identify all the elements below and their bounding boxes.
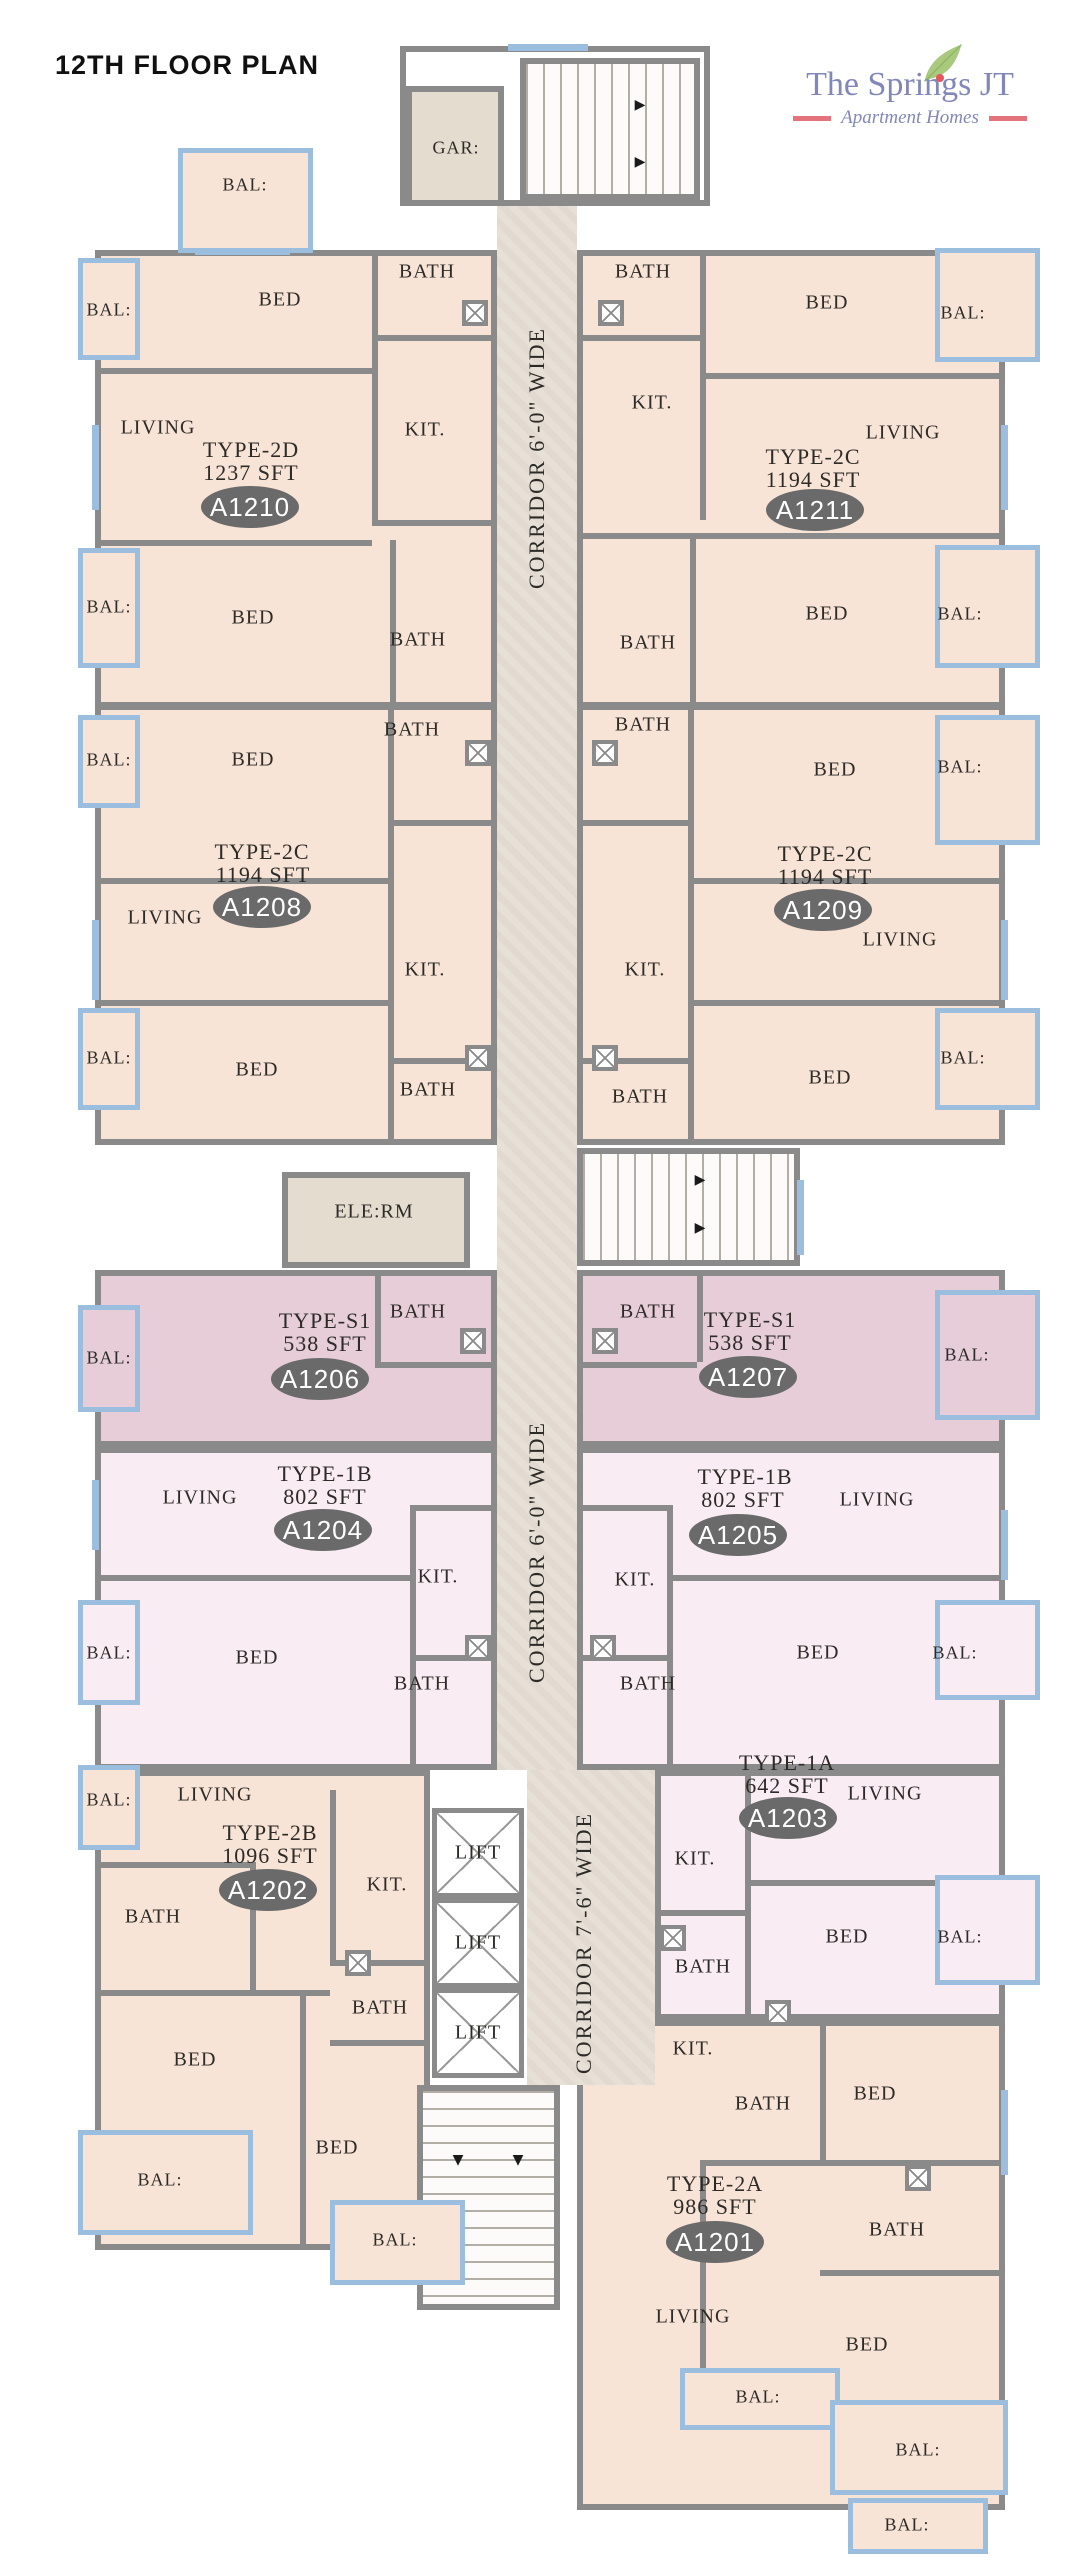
wall (388, 820, 497, 826)
duct-x-icon (598, 300, 624, 326)
room-label-kitchen: KIT. (367, 1874, 408, 1897)
duct-x-icon (460, 1328, 486, 1354)
duct-x-icon (905, 2165, 931, 2191)
wall (655, 1910, 745, 1916)
room-label-kitchen: KIT. (632, 392, 673, 415)
stairs-top (520, 58, 700, 200)
lift-label: LIFT (455, 1932, 501, 1955)
unit-area: 1237 SFT (203, 460, 298, 486)
stair-arrow-icon: ▼ (513, 2152, 524, 2168)
corridor-label-middle: CORRIDOR 6'-0" WIDE (524, 1421, 550, 1683)
window (797, 1180, 804, 1255)
tagline-bar (793, 116, 831, 121)
balcony (178, 148, 313, 253)
wall (101, 1000, 388, 1006)
stairs-middle (577, 1148, 800, 1266)
duct-x-icon (465, 1045, 491, 1071)
room-label-living: LIVING (848, 1783, 923, 1806)
room-label-balcony: BAL: (937, 1927, 982, 1948)
room-label-bath: BATH (394, 1673, 450, 1696)
wall (667, 1505, 673, 1770)
brand-tagline: Apartment Homes (841, 107, 979, 129)
room-label-balcony: BAL: (940, 1048, 985, 1069)
unit-badge-a1202: A1202 (219, 1869, 317, 1911)
room-label-balcony: BAL: (937, 757, 982, 778)
room-label-bed: BED (174, 2049, 217, 2072)
room-label-bed: BED (232, 607, 275, 630)
unit-area: 1194 SFT (778, 864, 873, 890)
wall (410, 1505, 416, 1770)
unit-area: 1096 SFT (222, 1843, 317, 1869)
wall (101, 540, 372, 546)
room-label-bath: BATH (390, 629, 446, 652)
room-label-bath: BATH (615, 714, 671, 737)
unit-area: 802 SFT (701, 1487, 784, 1513)
window (1001, 920, 1008, 1000)
brand-dot-icon (936, 74, 944, 82)
unit-badge-a1206: A1206 (271, 1358, 369, 1400)
wall (577, 533, 1001, 539)
stair-arrow-icon: ▶ (635, 154, 646, 170)
unit-badge-a1209: A1209 (774, 889, 872, 931)
room-label-balcony: BAL: (86, 597, 131, 618)
room-label-balcony: BAL: (86, 300, 131, 321)
corridor-label-bottom: CORRIDOR 7'-6" WIDE (571, 1812, 597, 2074)
room-label-bath: BATH (869, 2219, 925, 2242)
room-label-balcony: BAL: (932, 1643, 977, 1664)
room-label-bath: BATH (352, 1997, 408, 2020)
wall (410, 1505, 497, 1511)
wall (372, 520, 497, 526)
room-label-bath: BATH (384, 719, 440, 742)
wall (388, 710, 394, 1145)
wall (700, 256, 706, 520)
wall (577, 335, 700, 341)
brand-name: The Springs JT (770, 66, 1050, 104)
unit-a1206-block (95, 1270, 497, 1447)
unit-badge-a1207: A1207 (699, 1356, 797, 1398)
room-label-bed: BED (232, 749, 275, 772)
room-label-bath: BATH (125, 1906, 181, 1929)
room-label-bath: BATH (675, 1956, 731, 1979)
lift-label: LIFT (455, 1842, 501, 1865)
unit-badge-a1211: A1211 (766, 489, 864, 531)
window (92, 920, 99, 1000)
balcony (935, 715, 1040, 845)
duct-x-icon (462, 300, 488, 326)
room-label-bed: BED (854, 2083, 897, 2106)
room-label-living: LIVING (866, 422, 941, 445)
window (92, 1480, 99, 1550)
wall (577, 1362, 697, 1368)
floor-plan: ▶ ▶ ▶ ▶ ▼ ▼ CORRIDOR 6'-0" WIDE CORRIDOR… (0, 0, 1075, 2560)
room-label-living: LIVING (128, 907, 203, 930)
room-label-balcony: BAL: (884, 2515, 929, 2536)
room-label-bed: BED (236, 1647, 279, 1670)
room-label-bed: BED (809, 1067, 852, 1090)
room-label-balcony: BAL: (137, 2170, 182, 2191)
wall (700, 2160, 1001, 2166)
unit-badge-a1205: A1205 (689, 1514, 787, 1556)
room-label-bath: BATH (620, 1301, 676, 1324)
room-label-living: LIVING (840, 1489, 915, 1512)
room-label-living: LIVING (163, 1487, 238, 1510)
tagline-bar (989, 116, 1027, 121)
room-label-kitchen: KIT. (405, 959, 446, 982)
unit-area: 538 SFT (283, 1331, 366, 1357)
unit-badge-a1210: A1210 (201, 486, 299, 528)
unit-badge-a1203: A1203 (739, 1797, 837, 1839)
room-label-balcony: BAL: (944, 1345, 989, 1366)
wall (577, 1505, 667, 1511)
wall (820, 2270, 1001, 2276)
unit-area: 986 SFT (673, 2194, 756, 2220)
wall (690, 533, 696, 705)
room-label-balcony: BAL: (86, 1790, 131, 1811)
wall (372, 256, 378, 520)
room-label-bed: BED (236, 1059, 279, 1082)
room-label-bed: BED (806, 292, 849, 315)
wall (688, 1000, 1001, 1006)
room-label-kitchen: KIT. (615, 1569, 656, 1592)
brand-logo: The Springs JT Apartment Homes (770, 66, 1050, 129)
wall (577, 702, 1005, 710)
window (1001, 1510, 1008, 1580)
unit-area: 538 SFT (708, 1330, 791, 1356)
wall (577, 820, 688, 826)
wing-upper-left-block (95, 250, 497, 1145)
unit-badge-a1201: A1201 (666, 2221, 764, 2263)
wall (667, 1575, 1001, 1581)
stair-arrow-icon: ▶ (695, 1220, 706, 1236)
garage-label: GAR: (432, 138, 479, 159)
duct-x-icon (660, 1925, 686, 1951)
wall (700, 373, 1001, 379)
wall (95, 702, 497, 710)
room-label-balcony: BAL: (86, 750, 131, 771)
wall (688, 710, 694, 1145)
lift-label: LIFT (455, 2022, 501, 2045)
room-label-bath: BATH (390, 1301, 446, 1324)
room-label-balcony: BAL: (735, 2387, 780, 2408)
unit-badge-a1204: A1204 (274, 1509, 372, 1551)
wall (330, 2040, 430, 2046)
room-label-balcony: BAL: (86, 1643, 131, 1664)
room-label-bed: BED (259, 289, 302, 312)
duct-x-icon (465, 1635, 491, 1661)
corridor-label-top: CORRIDOR 6'-0" WIDE (524, 327, 550, 589)
room-label-balcony: BAL: (937, 604, 982, 625)
room-label-balcony: BAL: (222, 175, 267, 196)
room-label-bath: BATH (615, 261, 671, 284)
room-label-living: LIVING (121, 417, 196, 440)
wall (820, 2025, 826, 2160)
duct-x-icon (590, 1635, 616, 1661)
room-label-kitchen: KIT. (673, 2038, 714, 2061)
room-label-bed: BED (846, 2334, 889, 2357)
wall (372, 335, 497, 341)
elevator-room-label: ELE:RM (334, 1201, 413, 1224)
room-label-bed: BED (806, 603, 849, 626)
window (1001, 2090, 1008, 2175)
unit-badge-a1208: A1208 (213, 886, 311, 928)
room-label-balcony: BAL: (86, 1348, 131, 1369)
wall (375, 1362, 497, 1368)
room-label-bed: BED (826, 1926, 869, 1949)
room-label-bath: BATH (400, 1079, 456, 1102)
wall (697, 1272, 703, 1362)
room-label-bed: BED (814, 759, 857, 782)
duct-x-icon (592, 1328, 618, 1354)
wall (330, 1790, 336, 1960)
room-label-bath: BATH (612, 1086, 668, 1109)
room-label-bath: BATH (399, 261, 455, 284)
wall (300, 1990, 306, 2245)
duct-x-icon (592, 1045, 618, 1071)
room-label-bath: BATH (620, 1673, 676, 1696)
duct-x-icon (465, 740, 491, 766)
stair-arrow-icon: ▼ (453, 2152, 464, 2168)
unit-area: 642 SFT (745, 1773, 828, 1799)
room-label-kitchen: KIT. (625, 959, 666, 982)
room-label-kitchen: KIT. (418, 1566, 459, 1589)
wall (101, 1990, 330, 1996)
room-label-living: LIVING (863, 929, 938, 952)
room-label-bath: BATH (620, 632, 676, 655)
wall (101, 368, 372, 374)
room-label-balcony: BAL: (372, 2230, 417, 2251)
unit-area: 802 SFT (283, 1484, 366, 1510)
room-label-balcony: BAL: (86, 1048, 131, 1069)
duct-x-icon (345, 1950, 371, 1976)
room-label-kitchen: KIT. (675, 1848, 716, 1871)
window (195, 248, 290, 255)
room-label-living: LIVING (178, 1784, 253, 1807)
room-label-bed: BED (797, 1642, 840, 1665)
unit-area: 1194 SFT (216, 862, 311, 888)
wall (101, 1575, 410, 1581)
room-label-bed: BED (316, 2137, 359, 2160)
page-title: 12TH FLOOR PLAN (55, 50, 319, 81)
duct-x-icon (592, 740, 618, 766)
wall (390, 540, 396, 705)
room-label-living: LIVING (656, 2306, 731, 2329)
duct-x-icon (765, 2000, 791, 2026)
room-label-balcony: BAL: (895, 2440, 940, 2461)
stair-arrow-icon: ▶ (635, 97, 646, 113)
stair-arrow-icon: ▶ (695, 1172, 706, 1188)
window (92, 425, 99, 510)
room-label-bath: BATH (735, 2093, 791, 2116)
window (508, 44, 588, 51)
window (1001, 425, 1008, 510)
room-label-kitchen: KIT. (405, 419, 446, 442)
wall (375, 1272, 381, 1362)
room-label-balcony: BAL: (940, 303, 985, 324)
